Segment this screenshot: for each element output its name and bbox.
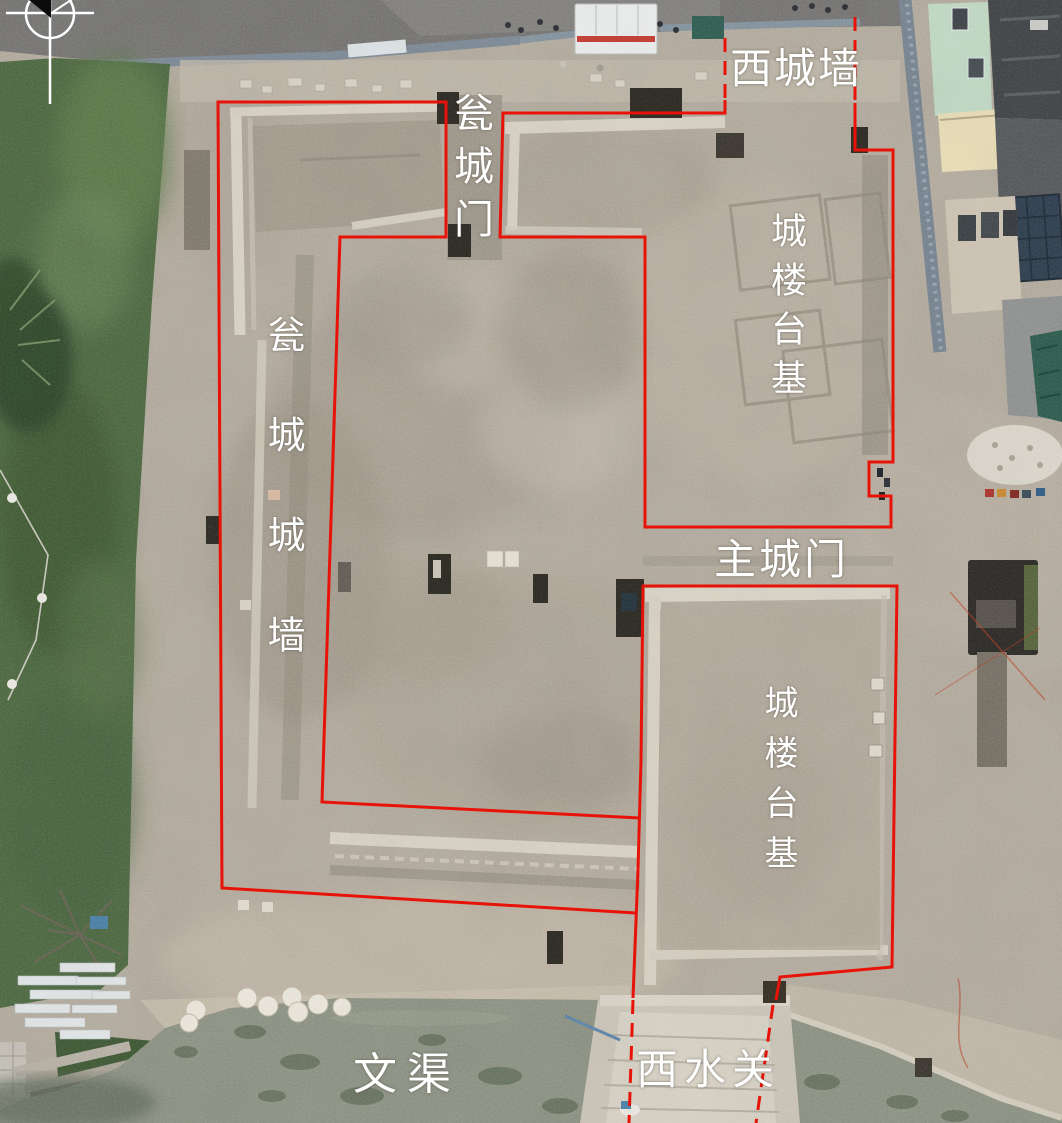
aerial-excavation-figure: 西城墙 瓮城门 城楼台基 瓮城城墙 主城门 城楼台基 文渠 西水关 xyxy=(0,0,1062,1123)
label-gate-tower-platform-upper: 城楼台基 xyxy=(768,212,804,408)
label-west-water-gate: 西水关 xyxy=(636,1050,780,1092)
aerial-photo-scene xyxy=(0,0,1062,1123)
label-barbican-gate: 瓮城门 xyxy=(450,92,490,251)
label-barbican-city-wall: 瓮城城墙 xyxy=(263,315,301,715)
label-wen-canal: 文渠 xyxy=(353,1053,461,1097)
label-main-city-gate: 主城门 xyxy=(714,540,849,582)
label-west-city-wall: 西城墙 xyxy=(730,49,862,91)
fine-grain-noise xyxy=(0,0,1062,1123)
label-gate-tower-platform-lower: 城楼台基 xyxy=(760,685,794,885)
